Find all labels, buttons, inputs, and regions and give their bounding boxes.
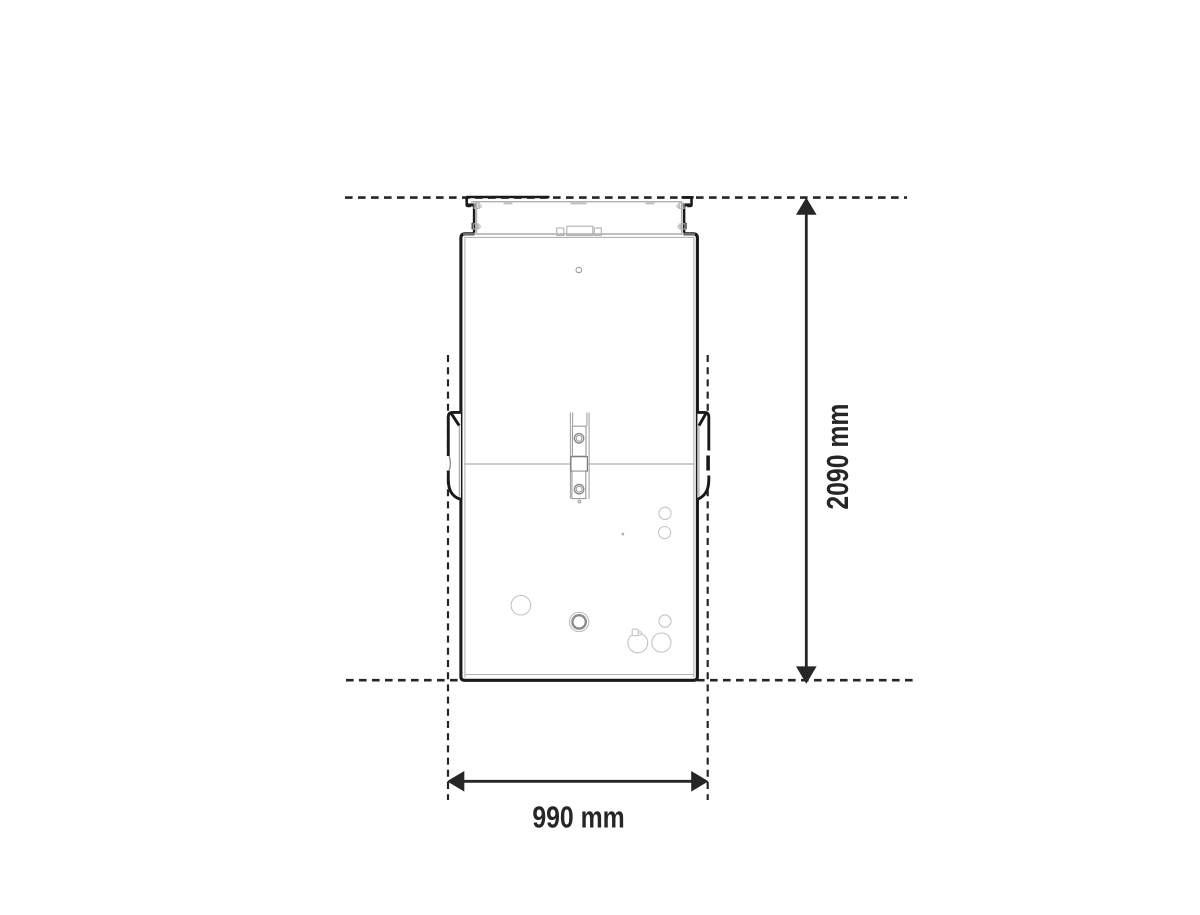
svg-text:990 mm: 990 mm xyxy=(532,800,624,834)
svg-text:2090 mm: 2090 mm xyxy=(820,404,854,510)
